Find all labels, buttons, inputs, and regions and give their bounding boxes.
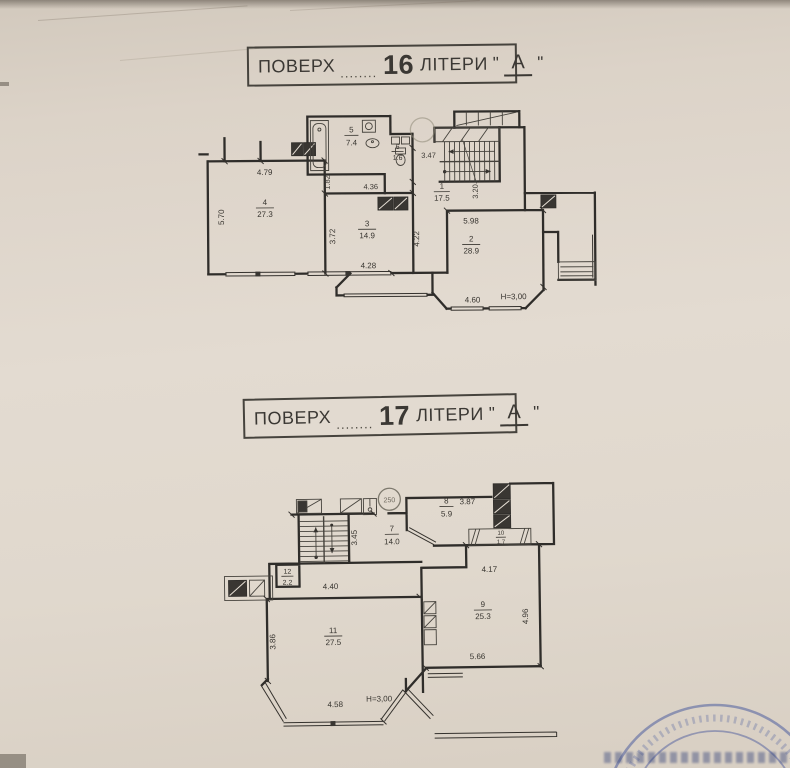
dim-label: 3.72 (328, 228, 337, 244)
dim-label: 4.58 (327, 700, 343, 709)
room-area: 27.3 (257, 210, 273, 219)
room-number: 10 (497, 531, 504, 537)
vent-boxes-17 (223, 498, 436, 648)
dim-label: 3.20 (471, 184, 480, 199)
windows-17 (259, 525, 557, 741)
quote-mark: " (537, 53, 544, 73)
room-area: 5.9 (441, 509, 453, 518)
dim-label: 5.66 (470, 652, 486, 661)
dim-label: 4.60 (465, 295, 481, 304)
quote-mark: " (493, 54, 500, 74)
room-number: 12 (283, 569, 291, 576)
dim-label: 3.45 (350, 529, 359, 545)
floor-plan-17: 250 3.45 7 14.0 8 3.87 5.9 10 1.7 4.17 9… (213, 469, 607, 764)
dim-label: 4.40 (323, 582, 339, 591)
letters-label: ЛІТЕРИ (420, 53, 488, 75)
floor-number: 17 (379, 402, 411, 430)
faint-stamp-circle-icon (410, 118, 434, 142)
room-number: 5 (349, 125, 354, 134)
washing-machine-icon (362, 120, 375, 132)
official-seal-icon (598, 688, 790, 768)
dim-label: 4.22 (412, 231, 421, 247)
floor-16-title-box: ПОВЕРХ........16ЛІТЕРИ"А" (247, 43, 517, 86)
walls-17 (259, 483, 556, 694)
room-area: 2.2 (283, 580, 293, 587)
dim-label: 3.47 (421, 151, 436, 160)
staircase-16-icon (439, 139, 499, 183)
building-letter: А (504, 51, 532, 76)
dim-label: 5.98 (463, 216, 479, 225)
room-number: 4 (263, 198, 268, 207)
dim-label: 5.70 (217, 209, 226, 225)
floor-number: 16 (383, 51, 414, 78)
room-number: 1 (440, 182, 445, 191)
edge-mark (0, 82, 9, 86)
dim-label: 3.86 (268, 634, 277, 650)
floor-label: ПОВЕРХ (254, 407, 332, 430)
room-number: 6 (396, 144, 400, 151)
ceiling-height-label: H=3,00 (501, 292, 528, 301)
scratch-line (290, 0, 480, 11)
hatched-duct-16 (558, 262, 595, 280)
sink-icon (366, 139, 379, 148)
floor-17-title-box: ПОВЕРХ........17ЛІТЕРИ"А" (243, 393, 518, 439)
room-area: 14.0 (384, 537, 400, 546)
letters-label: ЛІТЕРИ (416, 403, 484, 425)
room-area: 25.3 (475, 612, 491, 621)
floor-plan-16: 4.79 5.70 1.82 4.36 3.72 4.28 4.22 3.47 … (194, 95, 606, 338)
room-area: 7.4 (346, 138, 358, 147)
room-number: 8 (444, 496, 449, 505)
room-number: 2 (469, 234, 474, 243)
room-number: 3 (365, 219, 370, 228)
scratch-line (120, 48, 260, 61)
leader-dots: ........ (340, 65, 377, 80)
room-number: 11 (329, 626, 338, 635)
quote-mark: " (533, 403, 540, 423)
dim-label: 4.36 (363, 182, 378, 191)
room-area: 1.6 (393, 155, 403, 162)
room-labels-17: 250 3.45 7 14.0 8 3.87 5.9 10 1.7 4.17 9… (266, 495, 531, 710)
room-area: 17.5 (434, 194, 450, 203)
room-area: 1.7 (497, 540, 506, 546)
room-area: 14.9 (359, 231, 375, 240)
scanned-floorplan-page: { "paper": { "background": "#ddd4c9", "i… (0, 0, 790, 768)
scratch-line (38, 5, 248, 21)
photo-top-edge (0, 0, 790, 9)
building-letter: А (500, 400, 528, 426)
room-number: 7 (389, 524, 394, 533)
room-number: 9 (481, 600, 486, 609)
ceiling-height-label: H=3,00 (366, 694, 393, 703)
room-area: 28.9 (463, 246, 479, 255)
dim-label: 4.96 (521, 608, 530, 624)
circle-stamp-number: 250 (383, 497, 395, 504)
room-area: 27.5 (325, 638, 341, 647)
dim-label: 3.87 (460, 497, 476, 506)
floor-label: ПОВЕРХ (258, 55, 335, 77)
quote-mark: " (489, 404, 496, 424)
bathtub-icon (310, 120, 328, 170)
dim-label: 4.17 (481, 565, 497, 574)
staircase-17-icon (300, 516, 349, 564)
dim-label: 4.28 (361, 261, 377, 270)
corner-shadow (0, 754, 26, 768)
leader-dots: ........ (336, 416, 373, 432)
dim-label: 4.79 (257, 168, 273, 177)
dim-label: 1.82 (323, 175, 332, 190)
